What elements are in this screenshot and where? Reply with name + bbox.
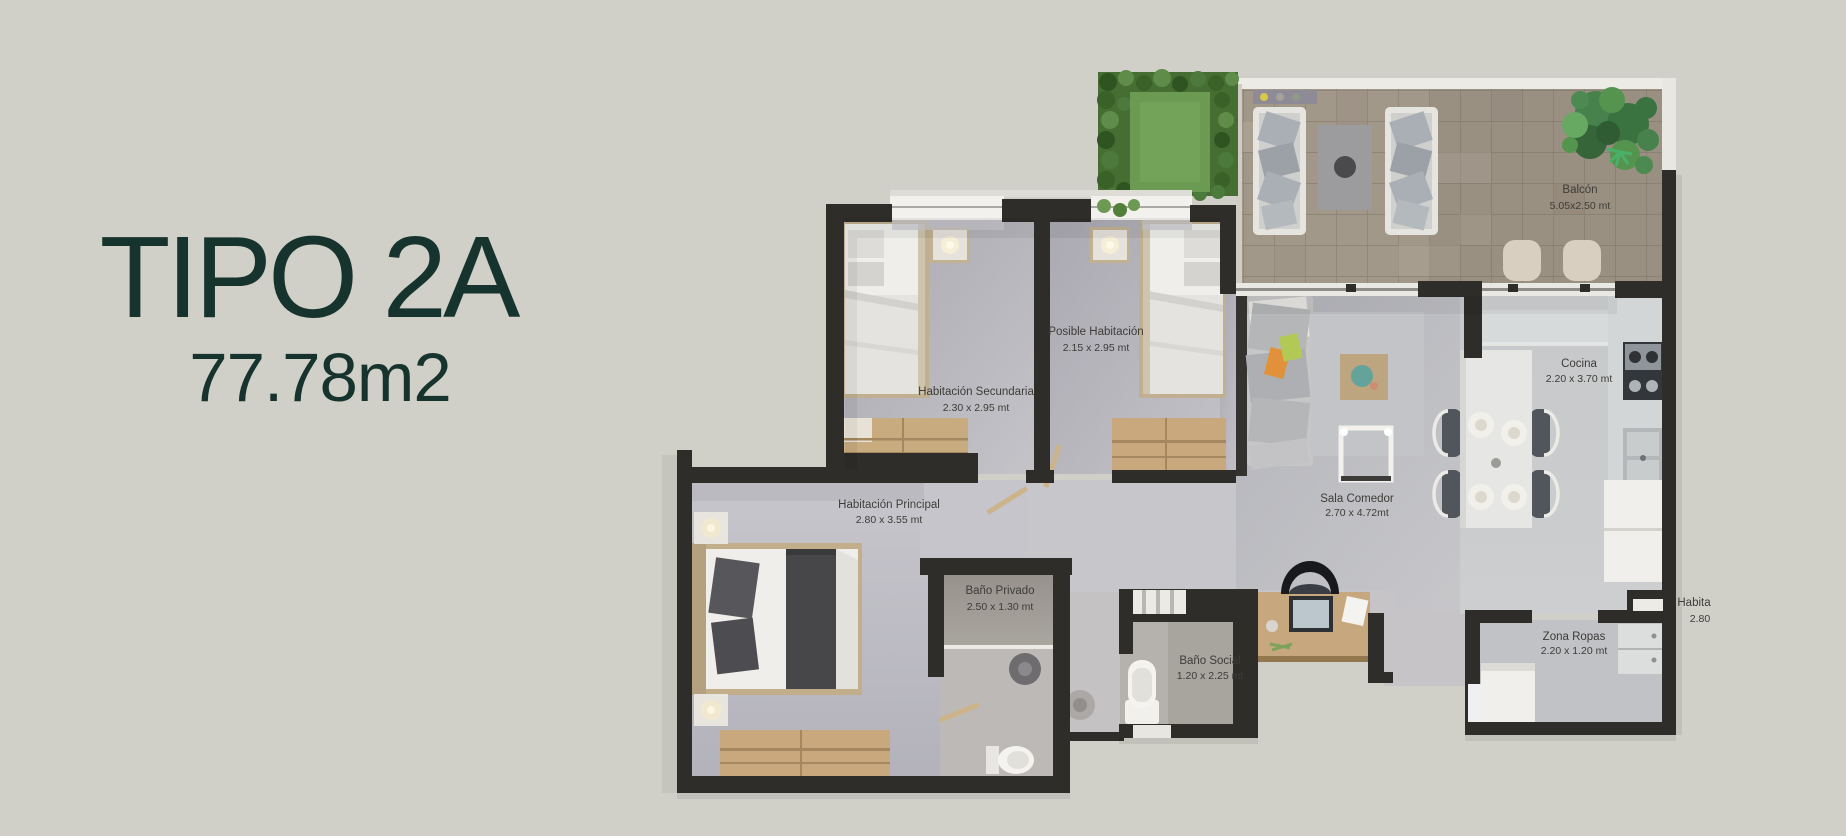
svg-text:Posible Habitación: Posible Habitación [1048, 326, 1143, 338]
svg-text:1.20 x 2.25 mt: 1.20 x 2.25 mt [1177, 670, 1244, 682]
svg-text:Baño Social: Baño Social [1179, 655, 1240, 667]
svg-text:2.15 x 2.95 mt: 2.15 x 2.95 mt [1063, 342, 1130, 354]
svg-text:Sala Comedor: Sala Comedor [1320, 493, 1394, 505]
svg-text:5.05x2.50 mt: 5.05x2.50 mt [1550, 200, 1611, 212]
svg-text:2.20 x 1.20 mt: 2.20 x 1.20 mt [1541, 645, 1608, 657]
svg-text:2.80 x 3.55 mt: 2.80 x 3.55 mt [856, 514, 923, 526]
svg-text:2.20 x 3.70 mt: 2.20 x 3.70 mt [1546, 373, 1613, 385]
svg-text:Habitación Principal: Habitación Principal [838, 499, 940, 511]
svg-text:Zona Ropas: Zona Ropas [1543, 631, 1606, 643]
svg-text:2.50 x 1.30 mt: 2.50 x 1.30 mt [967, 601, 1034, 613]
svg-text:Cocina: Cocina [1561, 358, 1597, 370]
svg-text:Balcón: Balcón [1562, 184, 1597, 196]
svg-text:Habita: Habita [1677, 597, 1711, 609]
svg-text:TIPO 2A: TIPO 2A [100, 212, 521, 342]
svg-text:Baño Privado: Baño Privado [965, 585, 1034, 597]
svg-text:77.78m2: 77.78m2 [189, 339, 451, 416]
svg-text:2.30 x 2.95 mt: 2.30 x 2.95 mt [943, 402, 1010, 414]
svg-text:2.70 x 4.72mt: 2.70 x 4.72mt [1325, 507, 1389, 519]
svg-text:2.80: 2.80 [1690, 613, 1711, 625]
svg-text:Habitación Secundaria: Habitación Secundaria [918, 386, 1034, 398]
